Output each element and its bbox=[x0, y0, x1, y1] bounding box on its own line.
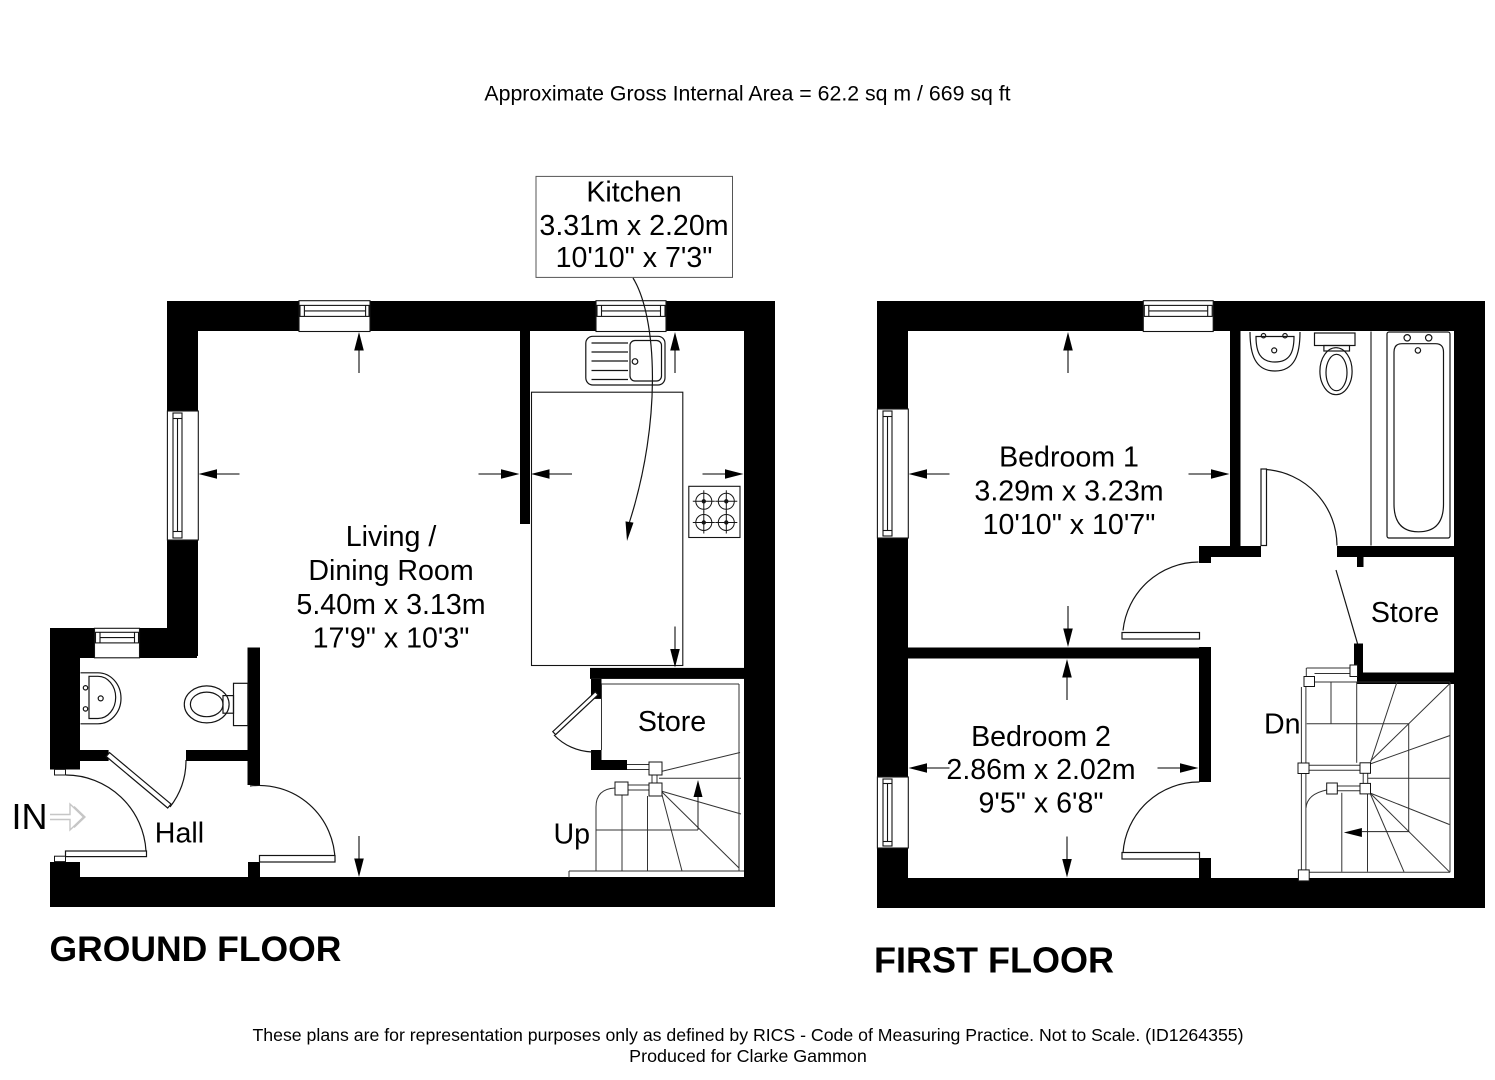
svg-text:Kitchen: Kitchen bbox=[586, 177, 681, 209]
svg-text:2.86m x 2.02m: 2.86m x 2.02m bbox=[946, 754, 1135, 786]
svg-text:17'9" x 10'3": 17'9" x 10'3" bbox=[313, 623, 470, 655]
svg-text:3.31m x 2.20m: 3.31m x 2.20m bbox=[539, 210, 728, 242]
svg-text:5.40m x 3.13m: 5.40m x 3.13m bbox=[296, 589, 485, 621]
svg-text:Store: Store bbox=[638, 706, 706, 738]
svg-text:GROUND FLOOR: GROUND FLOOR bbox=[50, 929, 342, 969]
svg-text:Hall: Hall bbox=[155, 818, 204, 850]
svg-text:These plans are for representa: These plans are for representation purpo… bbox=[252, 1025, 1243, 1045]
svg-text:Bedroom 2: Bedroom 2 bbox=[971, 721, 1111, 753]
svg-text:10'10" x 10'7": 10'10" x 10'7" bbox=[983, 509, 1156, 541]
svg-text:Up: Up bbox=[554, 819, 591, 851]
svg-text:3.29m x 3.23m: 3.29m x 3.23m bbox=[974, 475, 1163, 507]
svg-text:Living /: Living / bbox=[346, 521, 437, 553]
svg-text:Produced for Clarke Gammon: Produced for Clarke Gammon bbox=[629, 1046, 867, 1066]
svg-text:9'5" x 6'8": 9'5" x 6'8" bbox=[978, 787, 1103, 819]
svg-text:Approximate Gross Internal Are: Approximate Gross Internal Area = 62.2 s… bbox=[484, 82, 1010, 106]
svg-text:Bedroom 1: Bedroom 1 bbox=[999, 442, 1139, 474]
svg-text:Dining Room: Dining Room bbox=[308, 555, 473, 587]
svg-text:Store: Store bbox=[1371, 597, 1439, 629]
svg-text:IN: IN bbox=[12, 796, 48, 837]
svg-text:Dn: Dn bbox=[1264, 709, 1301, 741]
svg-text:FIRST FLOOR: FIRST FLOOR bbox=[874, 940, 1114, 981]
svg-text:10'10" x 7'3": 10'10" x 7'3" bbox=[556, 242, 713, 274]
